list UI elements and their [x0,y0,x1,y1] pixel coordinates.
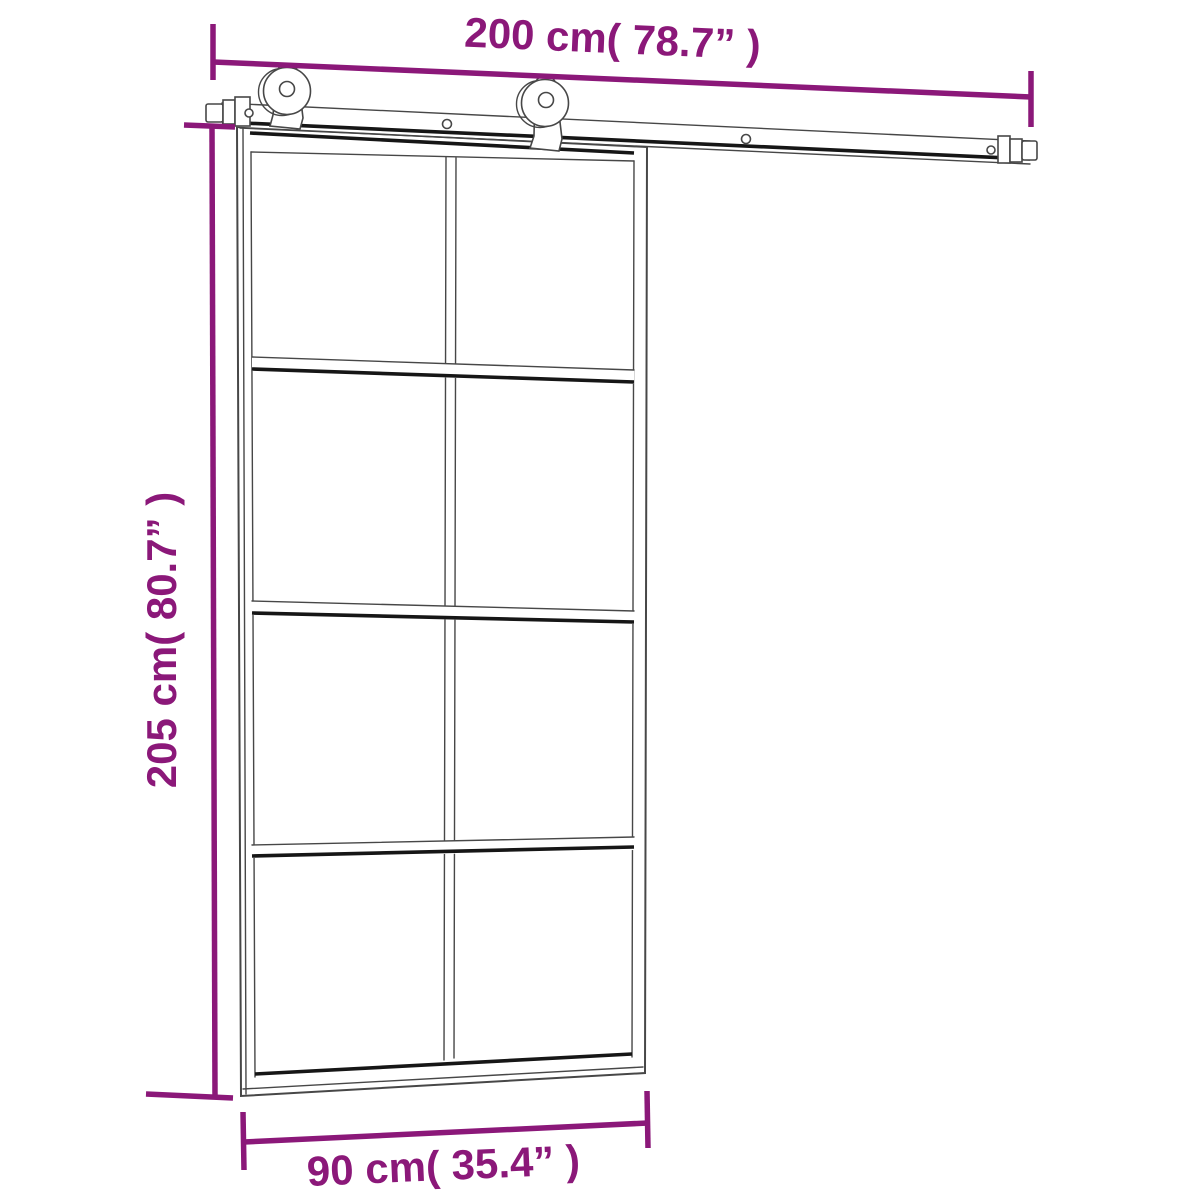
rail-screw-hole-2 [742,135,751,144]
dimension-tick-bottom-left [243,1112,244,1170]
roller-right-hub [539,93,554,108]
diagram-canvas: 200 cm( 78.7” ) 205 cm( 80.7” ) 90 cm( 3… [0,0,1200,1200]
dimension-tick-left-top [184,125,235,127]
dimension-door-height: 205 cm( 80.7” ) [138,125,235,1098]
end-stop-screw-left [245,109,253,117]
roller-left-hub [280,82,295,97]
dimension-door-width: 90 cm( 35.4” ) [243,1091,648,1195]
end-stop-screw-right [987,146,995,154]
dimension-line-left [212,127,215,1097]
dimension-line-top [213,62,1031,97]
dimension-label-rail-width: 200 cm( 78.7” ) [463,9,761,69]
dimension-line-bottom [244,1123,648,1142]
sliding-door [237,127,647,1096]
dimension-tick-bottom-right [647,1091,648,1148]
dimension-label-door-height: 205 cm( 80.7” ) [138,492,185,789]
rail-screw-hole-1 [443,120,452,129]
rail-end-stop-left [206,97,253,126]
dimension-tick-left-bottom [146,1094,233,1098]
door-dimension-diagram: 200 cm( 78.7” ) 205 cm( 80.7” ) 90 cm( 3… [0,0,1200,1200]
dimension-label-door-width: 90 cm( 35.4” ) [306,1136,581,1195]
